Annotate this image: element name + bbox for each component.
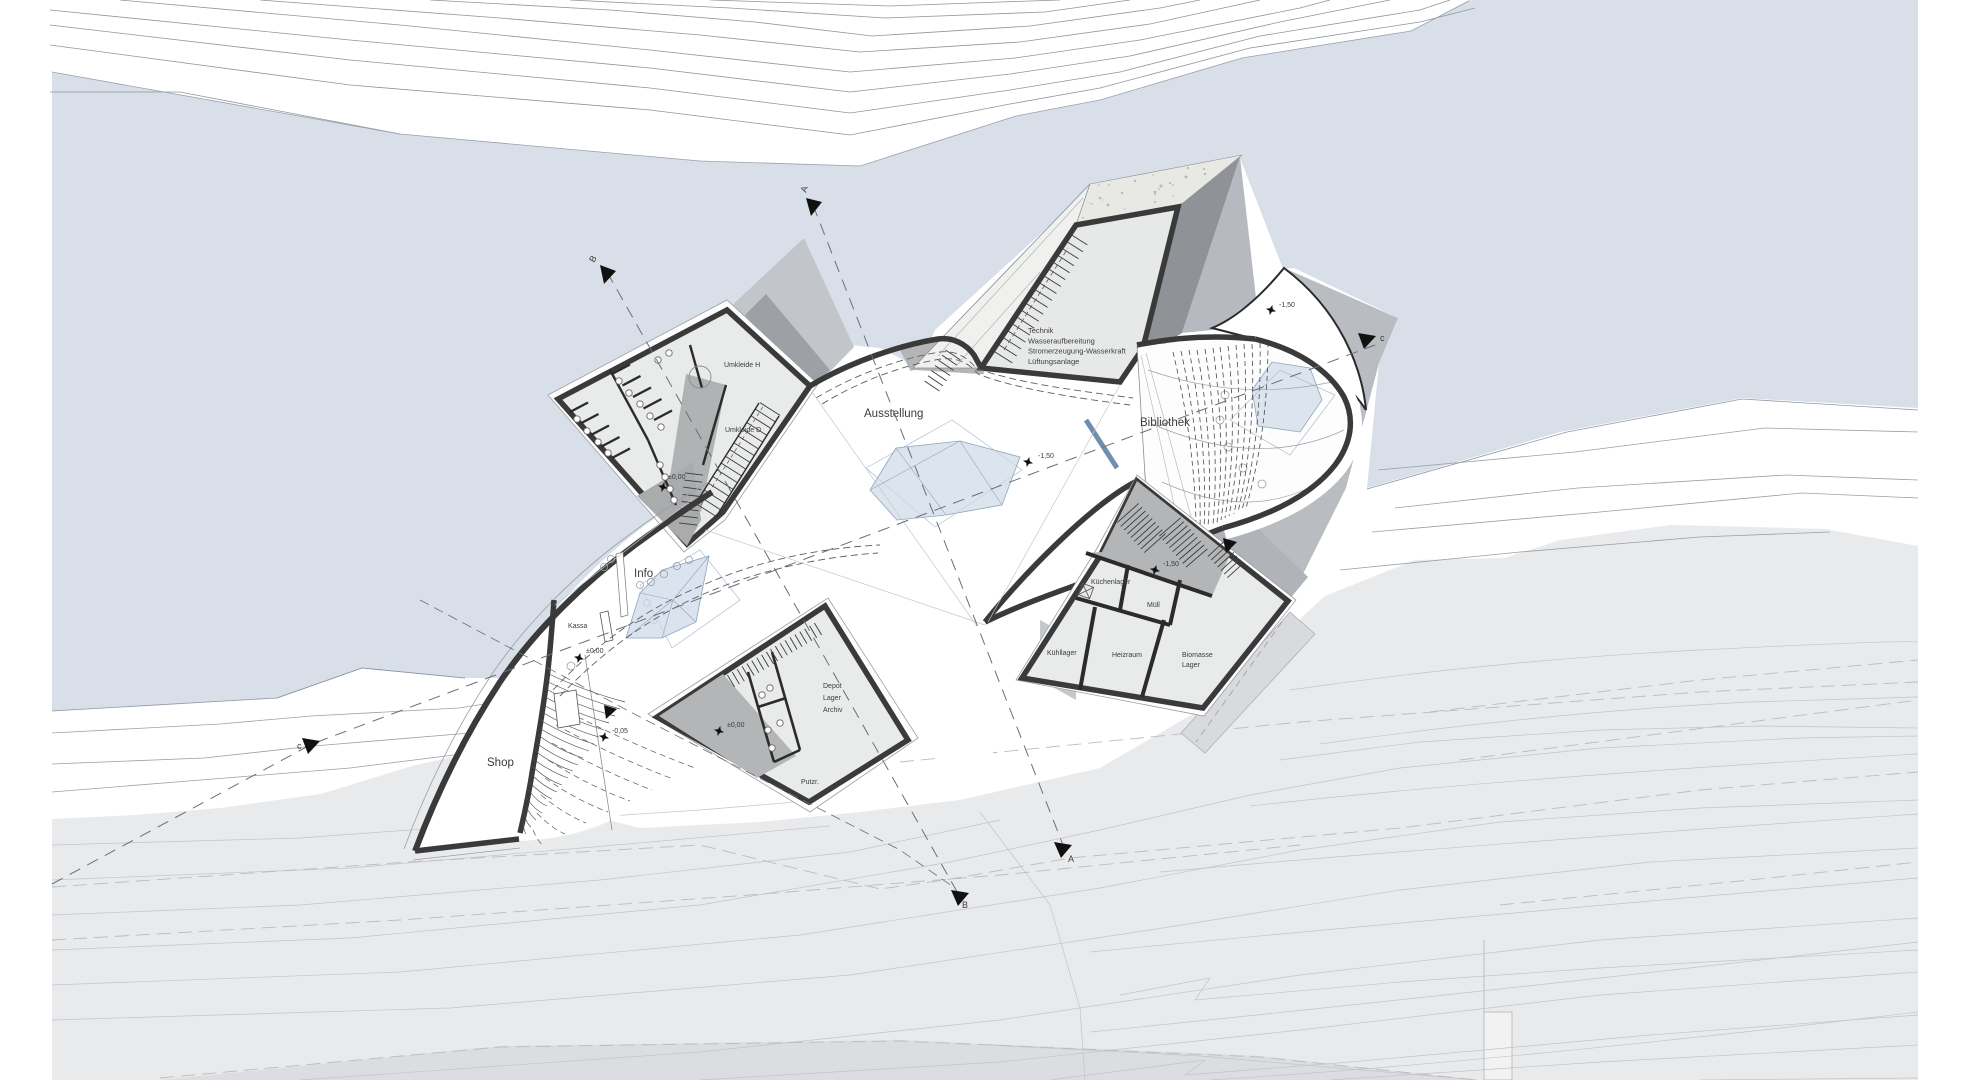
svg-text:Kassa: Kassa (568, 623, 588, 630)
svg-text:Wasseraufbereitung: Wasseraufbereitung (1028, 336, 1095, 345)
svg-text:Umkleide H: Umkleide H (724, 362, 760, 369)
svg-text:A: A (1068, 854, 1074, 864)
svg-text:-1,50: -1,50 (1163, 561, 1179, 568)
svg-text:Archiv: Archiv (823, 707, 843, 714)
svg-text:Heizraum: Heizraum (1112, 652, 1142, 659)
svg-text:±0,00: ±0,00 (668, 474, 686, 481)
svg-text:c: c (1380, 333, 1385, 343)
svg-text:-0,05: -0,05 (612, 728, 628, 735)
svg-text:Technik: Technik (1028, 326, 1054, 335)
svg-text:Info: Info (634, 568, 653, 580)
svg-text:±0,00: ±0,00 (727, 722, 745, 729)
svg-text:Lüftungsanlage: Lüftungsanlage (1028, 357, 1079, 366)
svg-text:Biomasse: Biomasse (1182, 652, 1213, 659)
svg-text:Bibliothek: Bibliothek (1140, 417, 1190, 429)
svg-text:Küchenlager: Küchenlager (1091, 579, 1131, 586)
svg-text:Stromerzeugung-Wasserkraft: Stromerzeugung-Wasserkraft (1028, 347, 1127, 356)
svg-text:-1,50: -1,50 (1038, 453, 1054, 460)
svg-text:Kühllager: Kühllager (1047, 650, 1077, 657)
svg-text:Umkleide D: Umkleide D (725, 427, 761, 434)
svg-text:B: B (962, 900, 968, 910)
svg-text:Depot: Depot (823, 683, 842, 690)
svg-text:±0,00: ±0,00 (586, 648, 604, 655)
svg-text:Shop: Shop (487, 757, 514, 769)
svg-text:c: c (297, 741, 302, 751)
svg-text:Lager: Lager (1182, 662, 1201, 669)
svg-text:Lager: Lager (823, 695, 842, 702)
svg-text:-1,50: -1,50 (1279, 302, 1295, 309)
svg-text:Putzr.: Putzr. (801, 779, 819, 786)
svg-text:Müll: Müll (1147, 602, 1160, 609)
svg-text:Ausstellung: Ausstellung (864, 408, 923, 420)
